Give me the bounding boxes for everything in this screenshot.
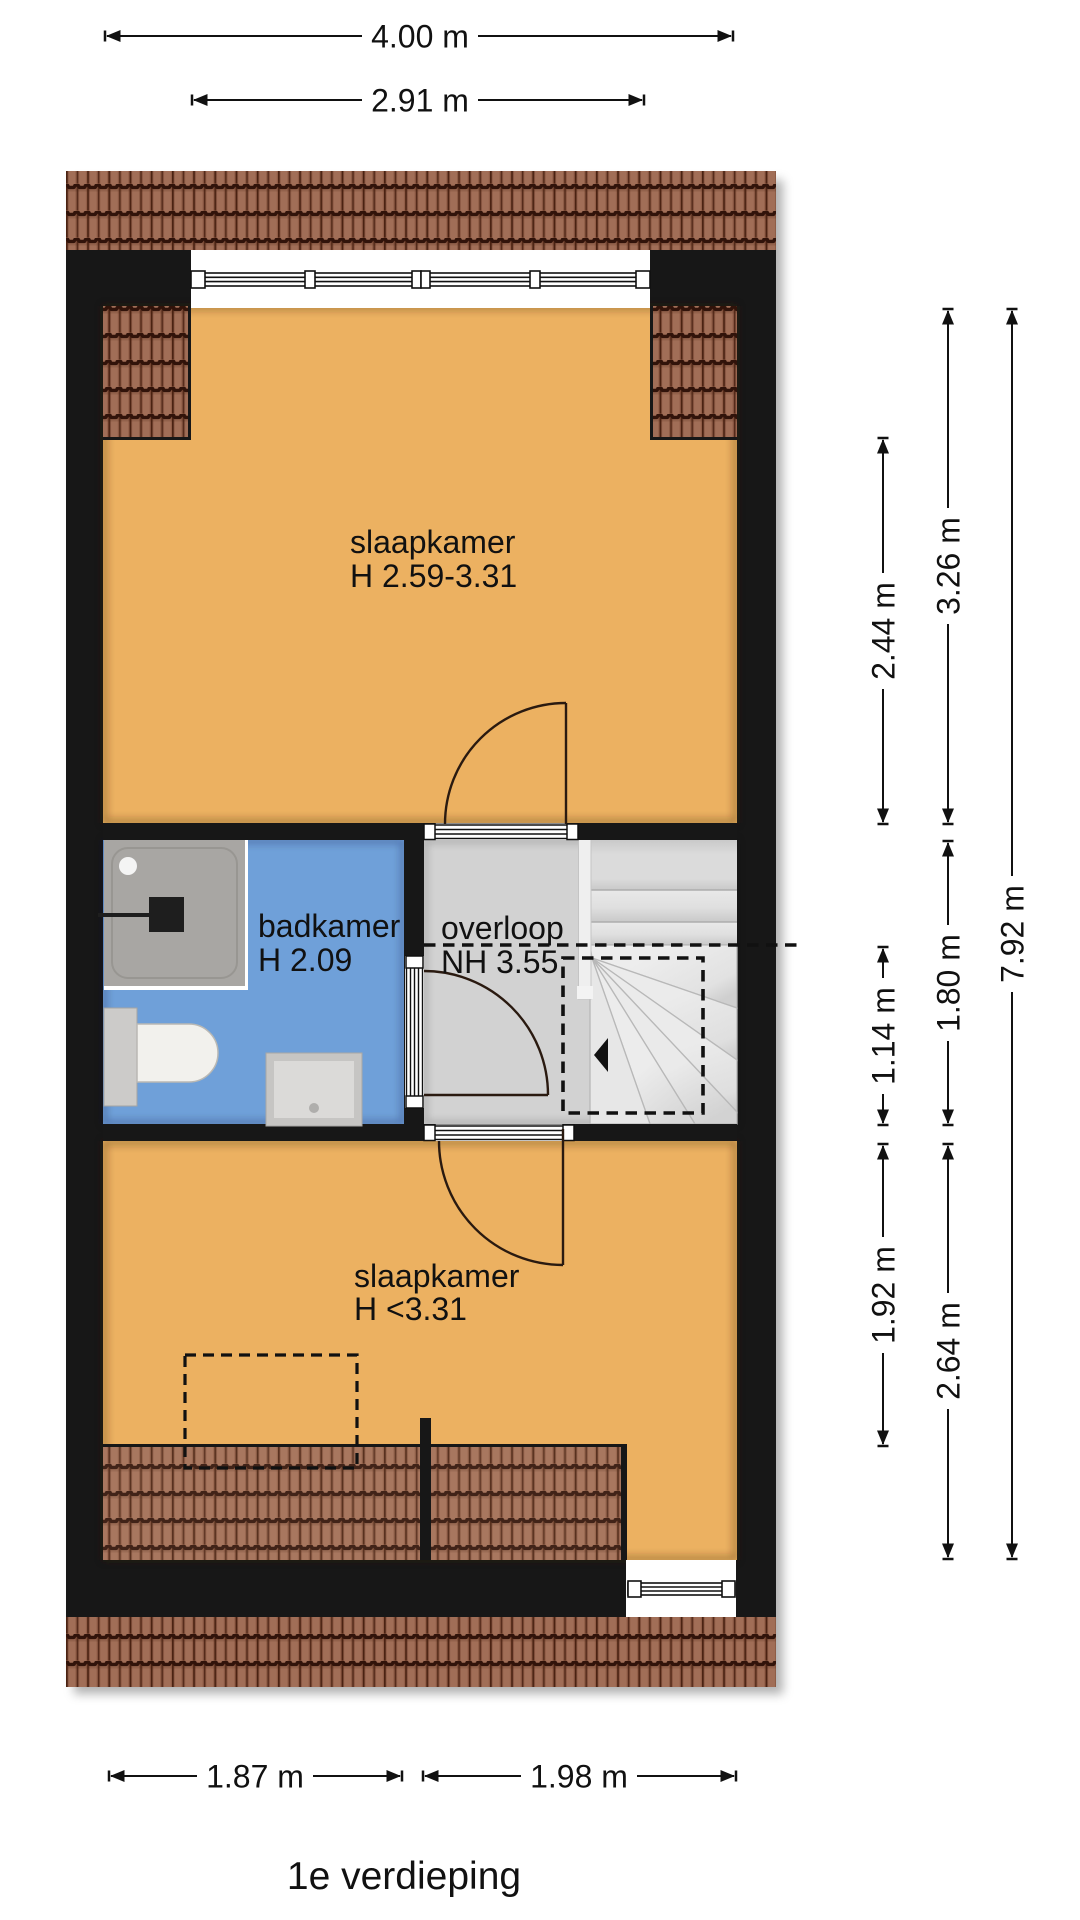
svg-text:3.26 m: 3.26 m bbox=[931, 517, 967, 615]
svg-text:2.64 m: 2.64 m bbox=[931, 1302, 967, 1400]
svg-text:1e verdieping: 1e verdieping bbox=[287, 1855, 521, 1898]
svg-text:1.80 m: 1.80 m bbox=[931, 934, 967, 1032]
svg-text:2.91 m: 2.91 m bbox=[371, 83, 469, 119]
svg-text:1.87 m: 1.87 m bbox=[206, 1759, 304, 1795]
svg-text:NH 3.55: NH 3.55 bbox=[441, 944, 558, 980]
svg-text:1.14 m: 1.14 m bbox=[866, 987, 902, 1085]
svg-text:overloop: overloop bbox=[441, 910, 564, 946]
svg-text:1.98 m: 1.98 m bbox=[530, 1759, 628, 1795]
svg-text:2.44 m: 2.44 m bbox=[866, 582, 902, 680]
svg-text:1.92 m: 1.92 m bbox=[866, 1246, 902, 1344]
svg-text:7.92 m: 7.92 m bbox=[995, 885, 1031, 983]
svg-text:H <3.31: H <3.31 bbox=[354, 1291, 467, 1327]
svg-text:slaapkamer: slaapkamer bbox=[350, 524, 516, 560]
svg-text:H 2.09: H 2.09 bbox=[258, 942, 352, 978]
svg-text:H 2.59-3.31: H 2.59-3.31 bbox=[350, 558, 517, 594]
svg-text:slaapkamer: slaapkamer bbox=[354, 1258, 520, 1294]
svg-text:badkamer: badkamer bbox=[258, 908, 401, 944]
svg-text:4.00 m: 4.00 m bbox=[371, 19, 469, 55]
